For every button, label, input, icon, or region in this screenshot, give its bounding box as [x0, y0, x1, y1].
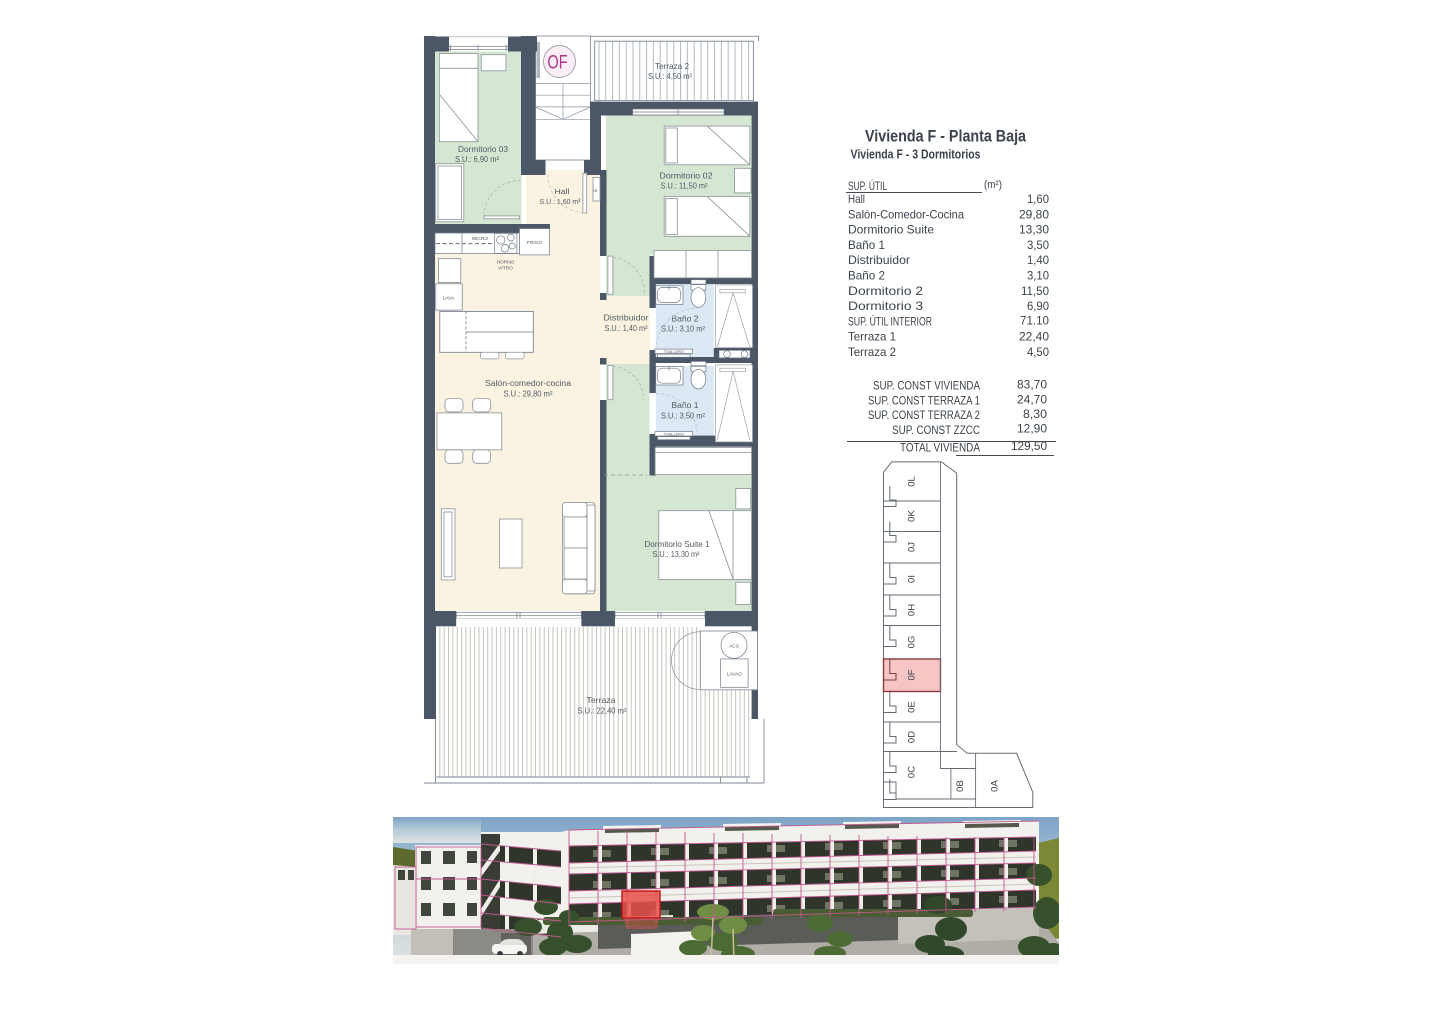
- svg-text:S.U.: 3,50 m²: S.U.: 3,50 m²: [661, 412, 705, 421]
- svg-text:S.U.: 4,50 m²: S.U.: 4,50 m²: [648, 72, 692, 81]
- svg-text:S.U.: 1,60 m²: S.U.: 1,60 m²: [540, 197, 581, 206]
- svg-text:VITRO: VITRO: [498, 266, 513, 272]
- svg-text:S.U.: 29,80 m²: S.U.: 29,80 m²: [504, 390, 553, 399]
- svg-text:29,80: 29,80: [1019, 207, 1049, 221]
- svg-text:SUP. CONST TERRAZA 2: SUP. CONST TERRAZA 2: [868, 408, 980, 422]
- svg-text:S.U.: 3,10 m²: S.U.: 3,10 m²: [661, 325, 705, 334]
- svg-text:0C: 0C: [907, 766, 918, 778]
- svg-text:S.U.: 1,40 m²: S.U.: 1,40 m²: [605, 324, 648, 333]
- svg-text:0B: 0B: [955, 780, 966, 792]
- svg-text:0H: 0H: [907, 604, 918, 616]
- svg-text:(m²): (m²): [984, 179, 1002, 191]
- svg-text:S.U.: 6,90 m²: S.U.: 6,90 m²: [455, 155, 499, 164]
- svg-text:Dormitorio 03: Dormitorio 03: [458, 145, 508, 154]
- svg-text:0J: 0J: [907, 542, 918, 552]
- svg-text:0K: 0K: [907, 510, 918, 522]
- svg-text:Hall: Hall: [848, 192, 865, 206]
- svg-text:4,50: 4,50: [1027, 345, 1049, 359]
- svg-text:LAVA: LAVA: [443, 296, 455, 302]
- svg-text:0E: 0E: [907, 701, 918, 713]
- svg-text:Dormitorio Suite 1: Dormitorio Suite 1: [645, 540, 710, 549]
- svg-text:S.U.: 11,50 m²: S.U.: 11,50 m²: [661, 182, 708, 191]
- svg-text:Vivienda F - 3 Dormitorios: Vivienda F - 3 Dormitorios: [851, 148, 981, 162]
- svg-text:SUP. CONST ZZCC: SUP. CONST ZZCC: [892, 423, 980, 437]
- svg-text:3,50: 3,50: [1027, 238, 1049, 252]
- svg-text:HORNO: HORNO: [497, 260, 515, 266]
- svg-text:Dormitorio 3: Dormitorio 3: [848, 299, 923, 313]
- svg-text:22,40: 22,40: [1019, 330, 1049, 344]
- svg-text:TOALLERO: TOALLERO: [664, 433, 684, 437]
- svg-text:ce: ce: [593, 188, 598, 193]
- svg-text:71.10: 71.10: [1020, 313, 1049, 327]
- svg-text:Baño 2: Baño 2: [848, 269, 885, 283]
- svg-text:Distribuidor: Distribuidor: [848, 253, 910, 267]
- svg-text:Dormitorio 02: Dormitorio 02: [660, 172, 713, 181]
- svg-text:6,90: 6,90: [1027, 299, 1049, 313]
- svg-text:OF: OF: [548, 51, 568, 73]
- svg-text:0A: 0A: [990, 780, 1001, 792]
- svg-text:Dormitorio Suite: Dormitorio Suite: [848, 223, 934, 237]
- svg-text:SUP. CONST TERRAZA 1: SUP. CONST TERRAZA 1: [868, 394, 980, 408]
- svg-text:Distribuidor: Distribuidor: [604, 314, 649, 323]
- svg-text:Terraza 1: Terraza 1: [848, 330, 896, 344]
- svg-text:Hall: Hall: [555, 187, 570, 196]
- svg-text:11,50: 11,50: [1021, 284, 1049, 298]
- svg-text:Salón-Comedor-Cocina: Salón-Comedor-Cocina: [848, 207, 964, 221]
- svg-text:24,70: 24,70: [1017, 393, 1047, 407]
- svg-text:3,10: 3,10: [1027, 269, 1049, 283]
- svg-text:Terraza 2: Terraza 2: [848, 345, 896, 359]
- svg-text:0I: 0I: [907, 575, 918, 583]
- svg-text:LAVAD: LAVAD: [727, 672, 743, 678]
- svg-text:83,70: 83,70: [1017, 378, 1047, 392]
- svg-text:12,90: 12,90: [1017, 422, 1047, 436]
- svg-text:SUP. CONST VIVIENDA: SUP. CONST VIVIENDA: [873, 379, 980, 393]
- svg-text:Terraza 2: Terraza 2: [655, 62, 689, 71]
- svg-text:13,30: 13,30: [1019, 223, 1049, 237]
- svg-text:0G: 0G: [907, 636, 918, 649]
- svg-text:S.U.: 22,40 m²: S.U.: 22,40 m²: [578, 707, 627, 716]
- svg-text:1,40: 1,40: [1027, 253, 1049, 267]
- svg-text:Terraza: Terraza: [587, 696, 616, 705]
- svg-text:Salón-comedor-cocina: Salón-comedor-cocina: [485, 379, 571, 388]
- svg-text:ACS: ACS: [729, 644, 739, 650]
- svg-text:8,30: 8,30: [1023, 407, 1047, 421]
- svg-text:MICRO: MICRO: [472, 236, 488, 242]
- svg-text:0L: 0L: [907, 476, 918, 487]
- svg-text:SUP. ÚTIL INTERIOR: SUP. ÚTIL INTERIOR: [848, 313, 932, 328]
- svg-text:1,60: 1,60: [1027, 192, 1049, 206]
- svg-text:TOALLERO: TOALLERO: [664, 350, 684, 354]
- svg-text:Baño 1: Baño 1: [672, 401, 699, 410]
- svg-text:SUP. ÚTIL: SUP. ÚTIL: [848, 178, 887, 193]
- svg-text:FRIGO: FRIGO: [527, 240, 542, 246]
- svg-text:0F: 0F: [907, 669, 918, 680]
- svg-text:Baño 2: Baño 2: [672, 315, 699, 324]
- svg-text:S.U.: 13,30 m²: S.U.: 13,30 m²: [653, 550, 700, 559]
- svg-text:0D: 0D: [907, 731, 918, 743]
- svg-text:Dormitorio 2: Dormitorio 2: [848, 284, 923, 298]
- svg-text:Vivienda F - Planta Baja: Vivienda F - Planta Baja: [865, 127, 1026, 146]
- svg-text:Baño 1: Baño 1: [848, 238, 885, 252]
